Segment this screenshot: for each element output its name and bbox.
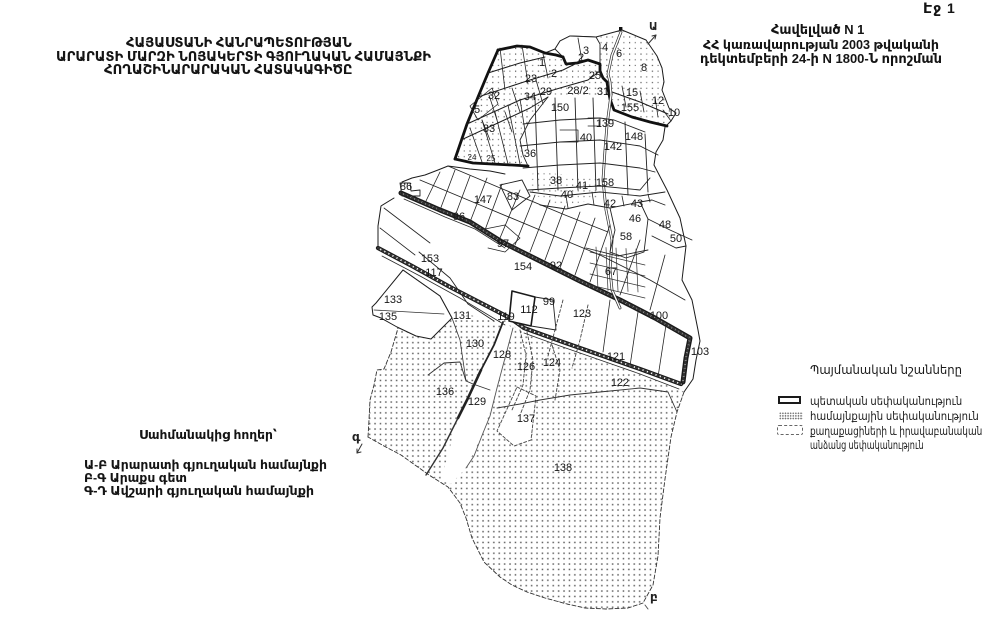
- svg-text:124: 124: [543, 357, 561, 369]
- svg-text:42: 42: [604, 198, 616, 210]
- svg-text:34: 34: [524, 91, 536, 103]
- svg-text:131: 131: [453, 310, 471, 322]
- svg-text:10: 10: [668, 107, 680, 119]
- svg-text:67: 67: [605, 266, 617, 278]
- svg-text:23: 23: [525, 73, 537, 85]
- svg-text:155: 155: [621, 102, 639, 114]
- svg-text:25: 25: [589, 70, 601, 82]
- svg-text:12: 12: [652, 95, 664, 107]
- svg-text:154: 154: [514, 261, 532, 273]
- svg-text:99: 99: [543, 296, 555, 308]
- svg-text:40: 40: [580, 132, 592, 144]
- svg-text:121: 121: [607, 351, 625, 363]
- svg-text:96: 96: [453, 211, 465, 223]
- svg-text:24: 24: [468, 153, 477, 162]
- svg-text:133: 133: [384, 294, 402, 306]
- svg-text:150: 150: [551, 102, 569, 114]
- svg-text:40: 40: [561, 189, 573, 201]
- svg-text:136: 136: [436, 386, 454, 398]
- svg-text:46: 46: [629, 213, 641, 225]
- svg-text:100: 100: [650, 310, 668, 322]
- svg-text:6: 6: [616, 48, 622, 60]
- svg-text:142: 142: [604, 141, 622, 153]
- svg-text:137: 137: [517, 413, 535, 425]
- svg-text:2: 2: [551, 68, 557, 80]
- svg-text:58: 58: [620, 231, 632, 243]
- svg-text:8: 8: [641, 62, 647, 74]
- svg-text:86: 86: [400, 181, 412, 193]
- svg-text:1: 1: [539, 57, 545, 69]
- svg-text:43: 43: [631, 198, 643, 210]
- svg-text:գ: գ: [352, 430, 361, 444]
- svg-text:5: 5: [474, 104, 480, 116]
- svg-text:բ: բ: [650, 590, 658, 604]
- svg-text:148: 148: [625, 131, 643, 143]
- svg-text:Ա: Ա: [649, 21, 658, 33]
- svg-text:153: 153: [421, 253, 439, 265]
- svg-text:50: 50: [670, 233, 682, 245]
- svg-text:4: 4: [602, 42, 608, 54]
- svg-text:128: 128: [493, 349, 511, 361]
- svg-text:83: 83: [507, 191, 519, 203]
- svg-text:147: 147: [474, 194, 492, 206]
- svg-text:122: 122: [611, 377, 629, 389]
- svg-text:130: 130: [466, 338, 484, 350]
- svg-text:29: 29: [540, 86, 552, 98]
- svg-text:139: 139: [596, 118, 614, 130]
- svg-text:129: 129: [468, 396, 486, 408]
- svg-text:97: 97: [497, 238, 509, 250]
- svg-text:41: 41: [576, 180, 588, 192]
- svg-text:48: 48: [659, 219, 671, 231]
- svg-text:2: 2: [578, 52, 584, 64]
- svg-text:92: 92: [550, 260, 562, 272]
- svg-text:135: 135: [379, 311, 397, 323]
- svg-text:126: 126: [517, 361, 535, 373]
- svg-text:25: 25: [487, 154, 496, 163]
- svg-text:32: 32: [488, 90, 500, 102]
- svg-text:138: 138: [554, 462, 572, 474]
- svg-text:38: 38: [550, 175, 562, 187]
- svg-text:117: 117: [425, 267, 443, 279]
- svg-text:31: 31: [597, 86, 609, 98]
- svg-text:36: 36: [524, 148, 536, 160]
- svg-text:103: 103: [691, 346, 709, 358]
- svg-text:15: 15: [626, 87, 638, 99]
- svg-text:112: 112: [520, 304, 538, 316]
- svg-text:28/2: 28/2: [567, 85, 588, 97]
- svg-text:33: 33: [483, 123, 495, 135]
- svg-text:158: 158: [596, 177, 614, 189]
- svg-text:119: 119: [497, 311, 515, 323]
- svg-text:123: 123: [573, 308, 591, 320]
